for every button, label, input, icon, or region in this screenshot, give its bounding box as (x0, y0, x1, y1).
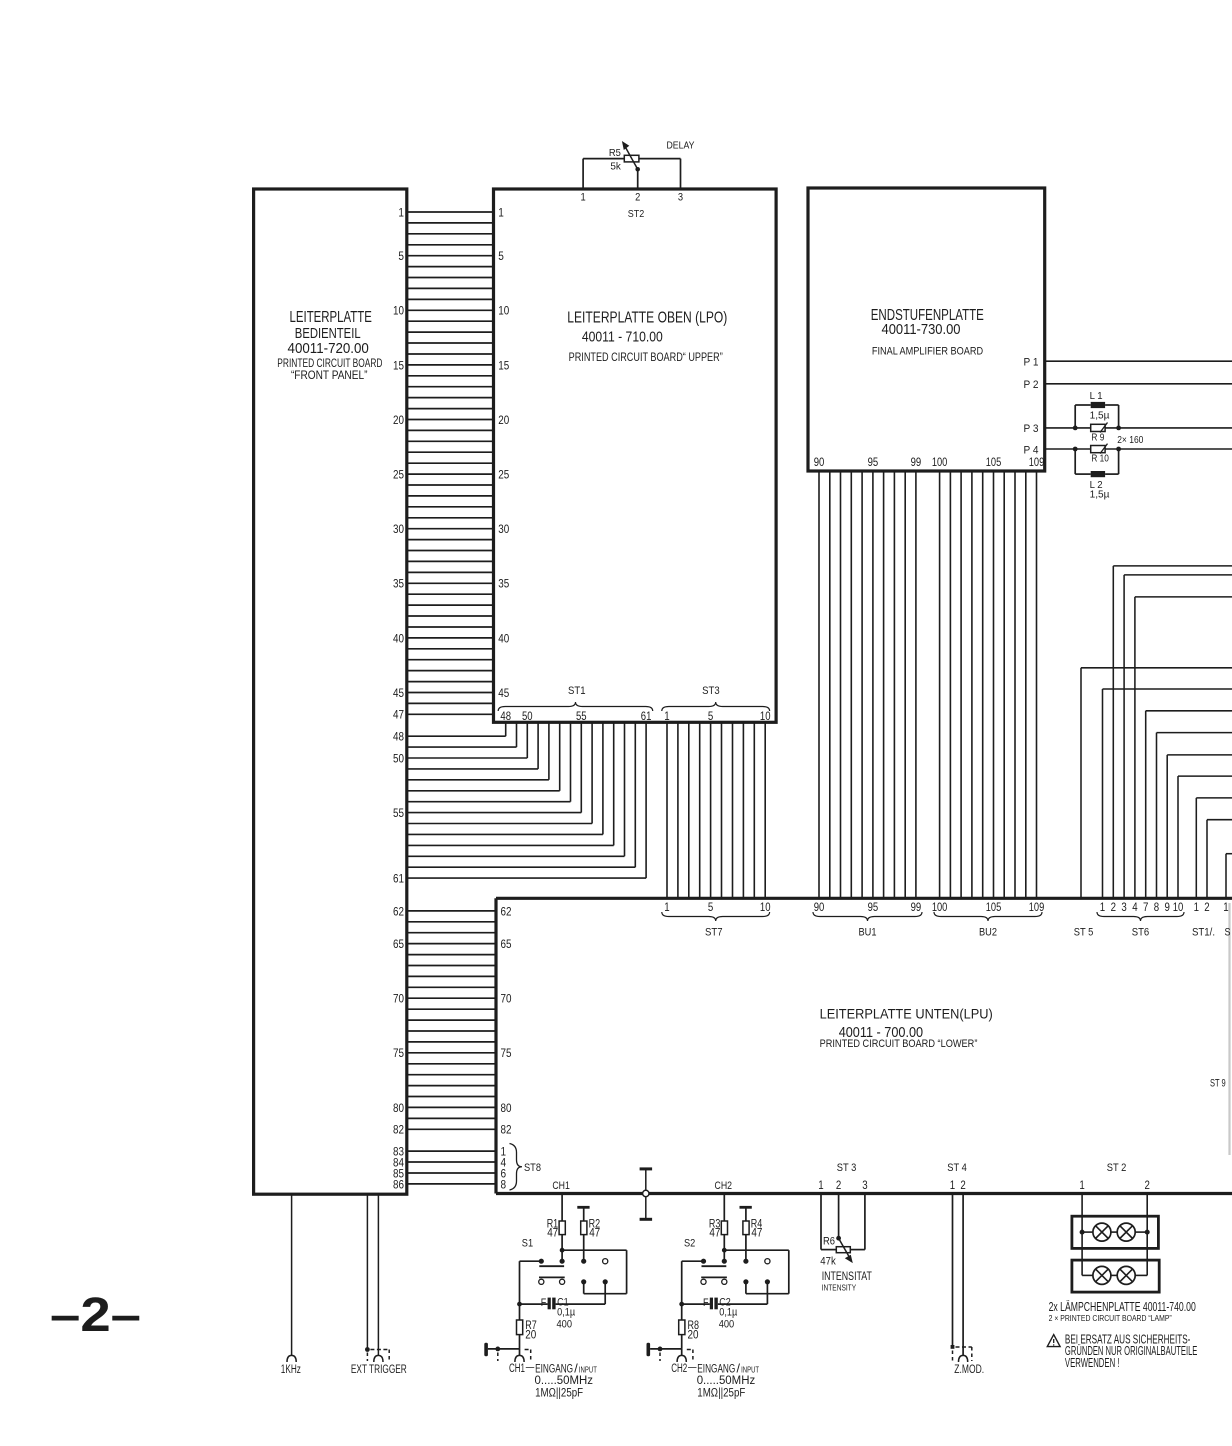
svg-text:0.....50MHz: 0.....50MHz (535, 1375, 594, 1387)
svg-text:45: 45 (393, 686, 404, 700)
svg-text:48: 48 (500, 711, 511, 723)
svg-text:PRINTED CIRCUIT BOARD “LOWE: PRINTED CIRCUIT BOARD “LOWER” (820, 1038, 978, 1050)
svg-text:90: 90 (814, 457, 825, 469)
svg-text:P 2: P 2 (1024, 379, 1039, 391)
svg-text:105: 105 (986, 902, 1002, 914)
svg-text:99: 99 (911, 457, 922, 469)
svg-text:1,5µ: 1,5µ (1090, 409, 1110, 421)
svg-text:8: 8 (501, 1177, 507, 1191)
svg-text:40011 - 710.00: 40011 - 710.00 (582, 329, 663, 345)
svg-text:P 3: P 3 (1024, 423, 1039, 435)
svg-text:—: — (688, 1362, 697, 1374)
svg-text:ST8: ST8 (524, 1162, 541, 1174)
svg-text:1MΩ||25pF: 1MΩ||25pF (535, 1387, 583, 1399)
svg-text:ST6: ST6 (1132, 926, 1150, 938)
svg-text:50: 50 (522, 711, 533, 723)
svg-text:2: 2 (960, 1180, 965, 1192)
svg-text:3: 3 (1121, 902, 1126, 914)
svg-text:99: 99 (911, 902, 922, 914)
svg-text:1: 1 (1223, 902, 1228, 914)
svg-text:55: 55 (393, 806, 404, 820)
svg-text:20: 20 (393, 413, 404, 427)
svg-text:CH2: CH2 (715, 1180, 733, 1192)
svg-text:95: 95 (868, 902, 879, 914)
svg-text:ST7: ST7 (705, 926, 723, 938)
svg-text:1: 1 (1100, 902, 1105, 914)
svg-text:10: 10 (760, 902, 771, 914)
svg-text:BU2: BU2 (979, 926, 997, 938)
svg-text:65: 65 (501, 937, 512, 951)
svg-text:ST 3: ST 3 (837, 1162, 857, 1174)
svg-text:INTENSITY: INTENSITY (822, 1283, 857, 1293)
svg-text:7: 7 (1143, 902, 1148, 914)
svg-text:ST1/.: ST1/. (1192, 926, 1215, 938)
svg-text:10: 10 (498, 304, 509, 318)
svg-text:48: 48 (393, 730, 404, 744)
svg-text:S2: S2 (684, 1237, 695, 1249)
svg-text:2: 2 (1204, 902, 1209, 914)
svg-text:0.....50MHz: 0.....50MHz (697, 1375, 756, 1387)
svg-text:2: 2 (836, 1180, 841, 1192)
svg-text:15: 15 (498, 358, 509, 372)
svg-text:1: 1 (1194, 902, 1199, 914)
svg-text:1: 1 (498, 205, 504, 219)
svg-text:1,5µ: 1,5µ (1090, 489, 1110, 501)
svg-text:VERWENDEN !: VERWENDEN ! (1065, 1355, 1120, 1370)
svg-text:ST2: ST2 (628, 208, 645, 220)
svg-text:80: 80 (393, 1101, 404, 1115)
svg-text:5k: 5k (610, 161, 621, 173)
svg-text:47: 47 (709, 1228, 720, 1240)
svg-text:2: 2 (1111, 902, 1116, 914)
svg-text:P 4: P 4 (1024, 444, 1039, 456)
svg-text:61: 61 (393, 872, 404, 886)
svg-text:25: 25 (393, 468, 404, 482)
svg-text:400: 400 (719, 1319, 735, 1331)
svg-text:F: F (703, 1297, 709, 1309)
svg-text:47k: 47k (820, 1256, 836, 1268)
svg-text:EINGANG: EINGANG (535, 1364, 573, 1376)
svg-text:80: 80 (501, 1101, 512, 1115)
svg-text:2x LÄMPCHENPLATTE 40011-740.0: 2x LÄMPCHENPLATTE 40011-740.00 (1049, 1299, 1196, 1314)
svg-text:9: 9 (1165, 902, 1170, 914)
svg-text:20: 20 (498, 413, 509, 427)
svg-text:40: 40 (498, 631, 509, 645)
svg-text:40011-730.00: 40011-730.00 (882, 322, 961, 338)
svg-text:8: 8 (1154, 902, 1159, 914)
svg-text:LEITERPLATTE OBEN (LPO): LEITERPLATTE OBEN (LPO) (567, 310, 727, 327)
svg-text:109: 109 (1029, 457, 1045, 469)
svg-text:5: 5 (708, 902, 713, 914)
svg-text:75: 75 (501, 1046, 512, 1060)
svg-text:ST 2: ST 2 (1107, 1162, 1127, 1174)
svg-text:ST 4: ST 4 (947, 1162, 967, 1174)
svg-text:30: 30 (498, 522, 509, 536)
svg-text:55: 55 (576, 711, 587, 723)
svg-text:40011-720.00: 40011-720.00 (288, 341, 369, 357)
svg-text:ST1: ST1 (568, 685, 586, 697)
svg-text:R6: R6 (823, 1235, 835, 1247)
svg-text:35: 35 (393, 577, 404, 591)
svg-text:3: 3 (862, 1180, 867, 1192)
svg-text:EXT TRIGGER: EXT TRIGGER (351, 1364, 407, 1376)
svg-text:47: 47 (547, 1228, 558, 1240)
svg-text:75: 75 (393, 1046, 404, 1060)
svg-text:DELAY: DELAY (667, 139, 695, 151)
svg-text:47: 47 (751, 1228, 762, 1240)
svg-text:PRINTED CIRCUIT BOARD“ UPPER”: PRINTED CIRCUIT BOARD“ UPPER” (569, 351, 723, 364)
svg-text:5: 5 (398, 249, 404, 263)
svg-text:1: 1 (818, 1180, 823, 1192)
svg-text:—: — (526, 1362, 535, 1374)
svg-text:R 9: R 9 (1091, 431, 1104, 443)
svg-text:R5: R5 (609, 147, 621, 159)
svg-text:CH1: CH1 (509, 1363, 525, 1375)
svg-text:10: 10 (1173, 902, 1184, 914)
svg-text:2 × PRINTED CIRCUIT BOARD “L: 2 × PRINTED CIRCUIT BOARD “LAMP” (1049, 1313, 1172, 1323)
svg-text:400: 400 (557, 1319, 573, 1331)
svg-text:50: 50 (393, 751, 404, 765)
svg-text:100: 100 (932, 457, 948, 469)
svg-text:L 1: L 1 (1090, 390, 1103, 402)
svg-text:5: 5 (498, 249, 504, 263)
svg-text:20: 20 (525, 1330, 536, 1342)
svg-text:35: 35 (498, 577, 509, 591)
svg-text:INTENSITAT: INTENSITAT (822, 1271, 872, 1283)
svg-text:105: 105 (986, 457, 1002, 469)
svg-text:82: 82 (501, 1123, 512, 1137)
svg-text:61: 61 (641, 711, 652, 723)
svg-text:1: 1 (1079, 1180, 1084, 1192)
svg-text:2× 160: 2× 160 (1117, 434, 1143, 446)
svg-text:INPUT: INPUT (579, 1365, 597, 1375)
svg-text:0,1µ: 0,1µ (557, 1307, 576, 1319)
svg-text:1: 1 (398, 205, 404, 219)
svg-text:1: 1 (581, 192, 586, 204)
svg-text:S: S (1225, 926, 1231, 938)
svg-text:“FRONT PANEL”: “FRONT PANEL” (291, 369, 368, 382)
svg-text:82: 82 (393, 1123, 404, 1137)
svg-text:4: 4 (1132, 902, 1138, 914)
svg-text:47: 47 (393, 708, 404, 722)
svg-text:90: 90 (814, 902, 825, 914)
svg-text:LEITERPLATTE UNTEN(LPU): LEITERPLATTE UNTEN(LPU) (820, 1007, 993, 1022)
svg-text:ST 5: ST 5 (1074, 926, 1094, 938)
svg-text:S1: S1 (522, 1237, 533, 1249)
svg-text:2: 2 (635, 192, 640, 204)
svg-text:25: 25 (498, 468, 509, 482)
svg-text:62: 62 (393, 904, 404, 918)
svg-text:INPUT: INPUT (741, 1365, 759, 1375)
svg-text:1MΩ||25pF: 1MΩ||25pF (697, 1387, 745, 1399)
svg-text:BEDIENTEIL: BEDIENTEIL (295, 326, 361, 342)
svg-text:Z.MOD.: Z.MOD. (954, 1364, 984, 1376)
svg-text:10: 10 (393, 304, 404, 318)
svg-text:BU1: BU1 (859, 926, 877, 938)
svg-text:40: 40 (393, 631, 404, 645)
svg-text:10: 10 (760, 711, 771, 723)
svg-text:47: 47 (589, 1228, 600, 1240)
svg-text:5: 5 (708, 711, 713, 723)
svg-text:2: 2 (1145, 1180, 1150, 1192)
svg-text:70: 70 (501, 992, 512, 1006)
svg-text:F: F (541, 1297, 547, 1309)
svg-text:ST 9: ST 9 (1210, 1077, 1226, 1089)
svg-text:P 1: P 1 (1024, 357, 1039, 369)
svg-text:95: 95 (868, 457, 879, 469)
svg-text:1: 1 (664, 711, 669, 723)
svg-text:–2–: –2– (50, 1289, 141, 1342)
svg-text:FINAL AMPLIFIER BOARD: FINAL AMPLIFIER BOARD (872, 345, 983, 357)
svg-text:LEITERPLATTE: LEITERPLATTE (290, 309, 372, 326)
svg-text:86: 86 (393, 1177, 404, 1191)
svg-text:1KHz: 1KHz (281, 1364, 301, 1376)
svg-text:1: 1 (664, 902, 669, 914)
svg-text:EINGANG: EINGANG (697, 1364, 735, 1376)
svg-text:70: 70 (393, 992, 404, 1006)
svg-text:ST3: ST3 (702, 685, 720, 697)
svg-text:1: 1 (950, 1180, 955, 1192)
svg-text:65: 65 (393, 937, 404, 951)
svg-text:CH2: CH2 (671, 1363, 687, 1375)
svg-text:R 10: R 10 (1091, 453, 1109, 465)
svg-text:3: 3 (678, 192, 683, 204)
svg-text:30: 30 (393, 522, 404, 536)
svg-text:CH1: CH1 (552, 1180, 570, 1192)
svg-text:15: 15 (393, 358, 404, 372)
svg-text:20: 20 (688, 1330, 699, 1342)
svg-text:0,1µ: 0,1µ (719, 1307, 738, 1319)
svg-text:62: 62 (501, 904, 512, 918)
svg-text:45: 45 (498, 686, 509, 700)
